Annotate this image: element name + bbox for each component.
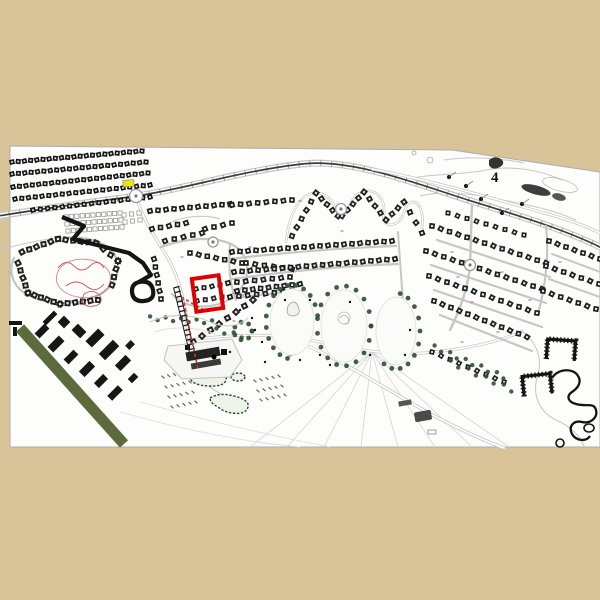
parking-stall [65,222,69,226]
tree [416,342,421,347]
yellow-marker [123,180,134,187]
villa-roof [241,262,243,264]
red-plot-label [320,265,323,266]
tree [502,382,506,386]
tree [334,285,339,290]
terrace-house-roof [147,172,149,174]
villa-roof [433,300,435,302]
terrace-house-roof [141,150,143,152]
tree [214,326,218,330]
villa-roof [595,308,597,310]
tree [367,338,372,343]
parking-stall [123,220,127,224]
speck [404,354,406,356]
terrace-house-roof [121,175,123,177]
tree [455,356,459,360]
villa-roof [157,209,159,211]
tree [313,302,318,307]
terrace-house-roof [39,208,41,210]
tree [148,314,152,318]
villa-roof [501,248,503,250]
red-plot-label [288,356,291,357]
tree [315,316,320,321]
red-plot-label [450,252,453,253]
red-plot-label [360,244,363,245]
villa-roof [189,252,191,254]
red-plot-label [528,300,531,301]
red-plot-label [318,248,321,249]
villa-roof [536,259,538,261]
terrace-house-roof [119,163,121,165]
villa-roof [189,206,191,208]
villa-roof [354,261,356,263]
red-plot-label [340,231,343,232]
villa-roof [253,279,255,281]
tree [382,362,387,367]
tree [232,330,236,334]
speck [254,329,256,331]
speck [264,361,266,363]
screenshot-canvas: 4 [0,0,600,600]
speck [299,359,301,361]
terrace-house-roof [79,155,81,157]
tree [362,297,367,302]
villa-roof [500,326,502,328]
villa-roof [244,289,246,291]
terrace-house-roof [104,153,106,155]
tree [344,363,349,368]
terrace-house-roof [61,193,63,195]
villa-roof [514,279,516,281]
terrace-house-roof [68,168,70,170]
villa-roof [257,202,259,204]
tree [367,309,372,314]
sector-label: 4 [491,170,499,186]
tree [294,283,299,288]
villa-roof [259,287,261,289]
terrace-house-roof [56,169,58,171]
villa-roof [536,312,538,314]
parking-stall [107,212,111,216]
red-plot-label [456,277,459,278]
villa-roof [204,299,206,301]
villa-roof [483,242,485,244]
villa-roof [563,271,565,273]
villa-roof [203,287,205,289]
tree [266,336,271,341]
tree [264,314,269,319]
villa-roof [577,302,579,304]
villa-roof [482,293,484,295]
tree [271,293,276,298]
villa-roof [245,262,247,264]
terrace-house-roof [57,181,59,183]
villa-roof [370,260,372,262]
villa-roof [383,240,385,242]
terrace-house-roof [98,202,100,204]
parking-stall [92,220,96,224]
villa-roof [447,212,449,214]
tree [456,365,460,369]
tree [246,336,251,341]
terrace-house-roof [31,184,33,186]
villa-roof [518,306,520,308]
tree [501,376,505,380]
villa-roof [213,226,215,228]
tree [264,325,269,330]
terrace-house-roof [102,189,104,191]
villa-roof [274,200,276,202]
terrace-house-roof [54,207,56,209]
tree [474,373,478,377]
terrace-house-roof [83,203,85,205]
villa-roof [532,285,534,287]
villa-roof [57,238,59,240]
red-plot-label [558,262,561,263]
parking-stall [118,211,122,215]
terrace-house-roof [142,185,144,187]
terrace-house-roof [108,176,110,178]
tree [464,357,468,361]
golf-ovals [270,289,416,365]
red-plot-label [496,332,499,333]
tree [250,329,255,334]
parking-stall [137,211,141,215]
terrace-house-roof [44,183,46,185]
red-plot-label [298,201,301,202]
red-plot-label [180,257,183,258]
villa-roof [113,276,115,278]
parking-stall [129,212,133,216]
villa-roof [303,246,305,248]
parking-stall [119,218,123,222]
roundabout-center [134,194,137,197]
villa-roof [173,238,175,240]
tree [325,292,330,297]
tree [334,362,339,367]
tree [222,331,226,335]
terrace-house-roof [67,156,69,158]
villa-roof [263,264,265,266]
villa-roof [446,281,448,283]
villa-roof [154,266,156,268]
tree [479,363,483,367]
villa-roof [176,223,178,225]
red-plot-label [232,321,235,322]
villa-roof [443,256,445,258]
villa-roof [565,246,567,248]
terrace-house-roof [96,177,98,179]
terrace-house-roof [30,159,32,161]
villa-roof [97,299,99,301]
tree [466,366,470,370]
villa-roof [431,351,433,353]
villa-roof [255,293,257,295]
terrace-house-roof [112,200,114,202]
roundabout-center [468,263,471,266]
roundabout-center [211,240,214,243]
speck [319,354,321,356]
tree [369,324,374,329]
terrace-house-roof [69,205,71,207]
tree [398,366,403,371]
tree [416,316,421,321]
terrace-house-roof [17,160,19,162]
villa-roof [239,250,241,252]
speck [329,364,331,366]
villa-roof [173,208,175,210]
villa-roof [523,234,525,236]
parking-stall [104,226,108,230]
parking-stall [109,226,113,230]
red-plot-label [498,246,501,247]
terrace-house-roof [34,196,36,198]
tree [389,366,394,371]
villa-roof [337,262,339,264]
terrace-house-roof [81,167,83,169]
villa-roof [461,262,463,264]
villa-roof [19,269,22,272]
villa-roof [485,223,487,225]
villa-roof [519,253,521,255]
terrace-house-roof [132,162,134,164]
terrace-house-roof [94,166,96,168]
villa-roof [466,236,468,238]
parking-stall [130,219,134,223]
villa-roof [221,204,223,206]
villa-roof [291,199,293,201]
tree [171,319,175,323]
terrace-house-roof [129,151,131,153]
villa-roof [517,332,519,334]
villa-roof [351,243,353,245]
red-plot-label [248,247,251,248]
terrace-house-roof [107,164,109,166]
villa-roof [367,242,369,244]
speck [261,341,263,343]
tree [301,287,306,292]
villa-roof [386,258,388,260]
villa-roof [500,300,502,302]
tree [449,358,453,362]
villa-roof [257,269,259,271]
tree [308,293,313,298]
parking-stall [71,229,75,233]
villa-roof [205,205,207,207]
villa-roof [160,298,162,300]
villa-roof [206,255,208,257]
parking-stall [115,225,119,229]
tree [509,389,513,393]
villa-roof [478,267,480,269]
tree [354,359,359,364]
red-plot-label [470,302,473,303]
villa-roof [42,243,45,246]
parking-stall [114,218,118,222]
villa-roof [275,285,277,287]
speck [369,354,371,356]
parking-stall [96,213,100,217]
speck [409,329,411,331]
villa-roof [231,222,233,224]
villa-roof [291,284,293,286]
terrace-house-roof [18,185,20,187]
parking-stall [103,219,107,223]
terrace-house-roof [54,157,56,159]
terrace-house-roof [75,192,77,194]
tree [491,381,495,385]
tree [271,345,276,350]
tree [495,370,499,374]
tree [315,331,320,336]
tree [406,296,411,301]
terrace-house-roof [127,198,129,200]
tree [319,345,324,350]
terrace-house-roof [48,194,50,196]
speck [229,351,231,353]
parking-stall [138,218,142,222]
red-plot-label [250,287,253,288]
villa-roof [425,250,427,252]
villa-roof [545,265,547,267]
terrace-house-roof [43,170,45,172]
tree [484,374,488,378]
villa-roof [117,260,119,262]
terrace-house-roof [21,197,23,199]
tree [202,321,206,325]
tree [412,353,417,358]
speck [349,301,351,303]
terrace-house-roof [30,171,32,173]
parking-stall [66,229,70,233]
villa-roof [273,268,275,270]
red-plot-label [460,342,463,343]
tree [278,287,283,292]
tree [319,303,324,308]
villa-roof [66,302,68,304]
tree [418,329,423,334]
villa-roof [496,273,498,275]
tree [354,288,359,293]
villa-roof [580,277,582,279]
villa-roof [52,300,55,303]
terrace-house-roof [91,154,93,156]
villa-roof [483,319,485,321]
tree [439,350,443,354]
parking-stall [88,227,92,231]
tree [406,362,411,367]
parking-stall [122,213,126,217]
parking-stall [102,212,106,216]
roundabout-center [339,207,342,210]
red-plot-label [500,272,503,273]
tree [325,356,330,361]
villa-roof [428,275,430,277]
terrace-house-roof [145,161,147,163]
villa-roof [28,248,31,251]
villa-roof [542,290,544,292]
parking-stall [93,227,97,231]
terrace-house-roof [134,173,136,175]
tree [278,352,283,357]
tree [246,322,251,327]
parking-stall [113,211,117,215]
villa-roof [289,276,291,278]
villa-roof [24,284,27,287]
villa-roof [464,287,466,289]
parking-stall [91,213,95,217]
terrace-house-roof [70,180,72,182]
terrace-house-roof [115,187,117,189]
tree [239,335,243,339]
terrace-house-roof [88,190,90,192]
parking-stall [87,220,91,224]
villa-roof [504,228,506,230]
villa-roof [289,266,291,268]
villa-roof [241,270,243,272]
villa-roof [271,248,273,250]
villa-roof [560,296,562,298]
tree [412,304,417,309]
tree [432,343,436,347]
villa-roof [448,231,450,233]
terrace-house-roof [83,179,85,181]
villa-roof [466,217,468,219]
tree [448,350,452,354]
villa-roof [431,225,433,227]
red-plot-label [250,267,253,268]
speck [309,299,311,301]
tree [285,356,290,361]
terrace-house-roof [17,172,19,174]
villa-roof [582,252,584,254]
parking-stall [98,227,102,231]
villa-roof [287,247,289,249]
speck [284,299,286,301]
villa-roof [239,203,241,205]
villa-roof [224,259,226,261]
villa-roof [27,292,30,295]
tree [470,363,474,367]
villa-roof [255,249,257,251]
villa-roof [467,313,469,315]
tree [267,303,272,308]
terrace-house-roof [116,152,118,154]
tree [486,370,490,374]
villa-roof [319,245,321,247]
villa-roof [39,296,42,299]
terrace-house-roof [42,158,44,160]
parking-stall [75,214,79,218]
tree [362,351,367,356]
site-plan-map: 4 [0,0,600,600]
parking-stall [97,220,101,224]
tree [285,283,290,288]
parking-stall [80,214,84,218]
villa-roof [305,265,307,267]
villa-roof [157,282,159,284]
parking-stall [86,213,90,217]
parking-stall [108,219,112,223]
speck [239,309,241,311]
villa-roof [192,234,194,236]
speck [251,317,253,319]
villa-roof [236,281,238,283]
villa-roof [450,306,452,308]
tree [398,291,403,296]
villa-roof [159,226,161,228]
villa-roof [548,240,550,242]
